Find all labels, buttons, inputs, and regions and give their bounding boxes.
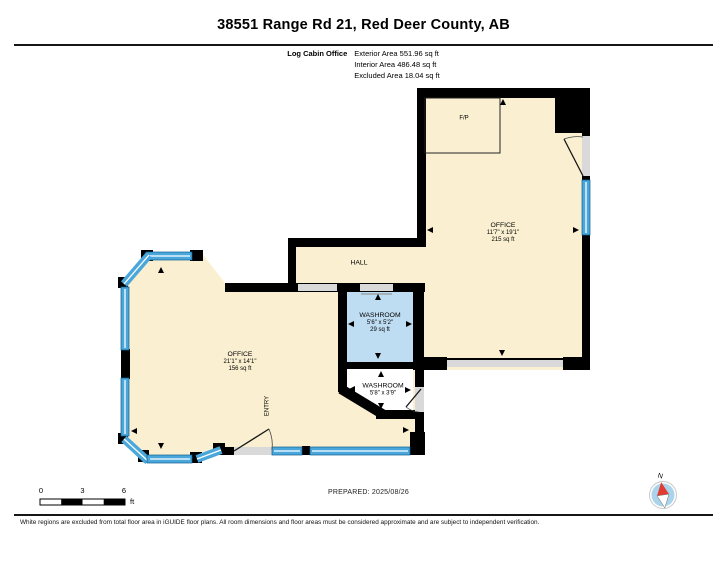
- room-name: OFFICE: [224, 351, 257, 359]
- prepared-date: PREPARED: 2025/08/26: [328, 489, 409, 496]
- room-name: ENTRY: [264, 396, 272, 416]
- room-name: WASHROOM: [362, 383, 403, 391]
- right-office-door-opening: [582, 136, 590, 176]
- scale-tick-0: 0: [39, 486, 43, 495]
- room-name: HALL: [350, 259, 367, 267]
- room-dimensions: 5'8" x 3'9": [362, 390, 403, 398]
- room-area: 29 sq ft: [359, 327, 400, 335]
- room-dimensions: 5'6" x 5'2": [359, 319, 400, 327]
- room-area: 215 sq ft: [487, 237, 519, 245]
- scale-tick-3: 3: [80, 486, 84, 495]
- room-label-washroom-upper: WASHROOM 5'6" x 5'2" 29 sq ft: [359, 312, 400, 335]
- disclaimer-text: White regions are excluded from total fl…: [20, 519, 539, 526]
- floor-plan-graphic: N: [0, 0, 727, 563]
- compass-north-label: N: [657, 473, 664, 481]
- room-label-office-right: OFFICE 11'7" x 19'1" 215 sq ft: [487, 222, 519, 245]
- fireplace-label: F/P: [459, 115, 468, 123]
- footer-divider: [14, 514, 713, 516]
- scale-unit: ft: [130, 497, 134, 506]
- room-name: OFFICE: [487, 222, 519, 230]
- washroom-door-opening: [360, 284, 393, 291]
- patio-threshold: [447, 360, 563, 367]
- entry-door-opening: [234, 447, 272, 455]
- room-label-office-left: OFFICE 21'1" x 14'1" 156 sq ft: [224, 351, 257, 374]
- room-name: F/P: [459, 115, 468, 123]
- compass: N: [650, 473, 677, 509]
- room-dimensions: 11'7" x 19'1": [487, 229, 519, 237]
- room-area: 156 sq ft: [224, 366, 257, 374]
- hall-office-opening: [298, 284, 337, 291]
- room-label-entry: ENTRY: [264, 396, 272, 416]
- room-dimensions: 21'1" x 14'1": [224, 358, 257, 366]
- floor-area: [121, 88, 590, 463]
- scale-bar: [40, 499, 125, 505]
- room-label-washroom-lower: WASHROOM 5'8" x 3'9": [362, 383, 403, 398]
- floor-plan-page: 38551 Range Rd 21, Red Deer County, AB L…: [0, 0, 727, 563]
- room-name: WASHROOM: [359, 312, 400, 320]
- room-label-hall: HALL: [350, 259, 367, 267]
- scale-tick-6: 6: [122, 486, 126, 495]
